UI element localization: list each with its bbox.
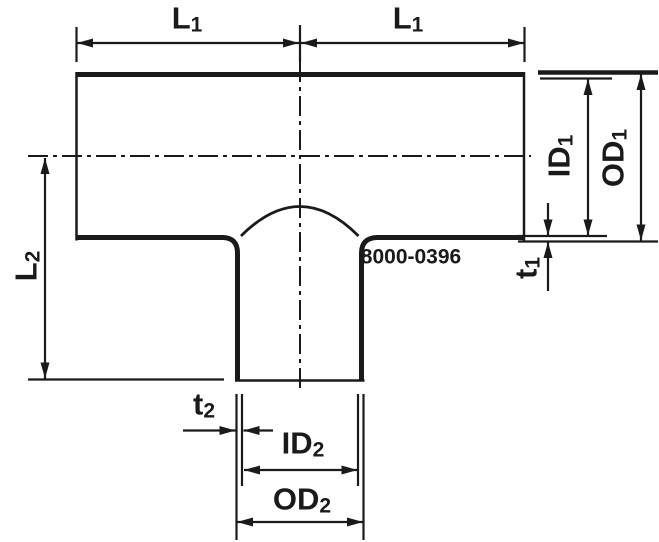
left-wing-and-branch-left-wall xyxy=(76,238,238,381)
dim-label-id1-base: ID xyxy=(542,146,577,177)
dim-label-id2: ID2 xyxy=(282,428,325,461)
dim-label-l1-right: L1 xyxy=(393,3,424,36)
dim-label-od2-sub: 2 xyxy=(319,495,331,518)
dim-label-l1-right-sub: 1 xyxy=(412,14,424,37)
dim-label-l2-base: L xyxy=(9,262,44,281)
dim-label-od2: OD2 xyxy=(273,484,331,517)
dim-label-l1-left-base: L xyxy=(172,1,191,36)
dimension-lines xyxy=(45,43,641,522)
dim-label-t2: t2 xyxy=(193,389,215,422)
dim-label-t2-base: t xyxy=(193,387,203,422)
dim-label-l2: L2 xyxy=(11,251,44,282)
dim-label-t1-sub: 1 xyxy=(522,257,545,269)
dim-label-t2-sub: 2 xyxy=(203,400,215,423)
dim-label-l1-left: L1 xyxy=(172,3,203,36)
dim-label-l1-left-sub: 1 xyxy=(191,14,203,37)
dim-label-t1-base: t xyxy=(509,269,544,279)
dim-label-od1-sub: 1 xyxy=(609,129,632,141)
dim-label-id1: ID1 xyxy=(544,135,577,178)
dim-label-od1-base: OD xyxy=(596,141,631,188)
dim-label-id2-sub: 2 xyxy=(313,439,325,462)
dim-label-id2-base: ID xyxy=(282,426,313,461)
technical-drawing-canvas: L1 L1 ID1 OD1 t1 L2 t2 ID2 OD2 8000-0396 xyxy=(0,0,659,542)
tee-fitting-drawing xyxy=(0,0,659,542)
dim-label-t1: t1 xyxy=(511,257,544,279)
dim-label-od1: OD1 xyxy=(598,129,631,187)
centerlines xyxy=(28,62,531,392)
dim-label-id1-sub: 1 xyxy=(555,135,578,147)
dim-label-l1-right-base: L xyxy=(393,1,412,36)
extension-lines xyxy=(28,25,658,540)
dim-label-od2-base: OD xyxy=(273,482,320,517)
dim-label-l2-sub: 2 xyxy=(22,251,45,263)
part-number: 8000-0396 xyxy=(361,247,461,268)
